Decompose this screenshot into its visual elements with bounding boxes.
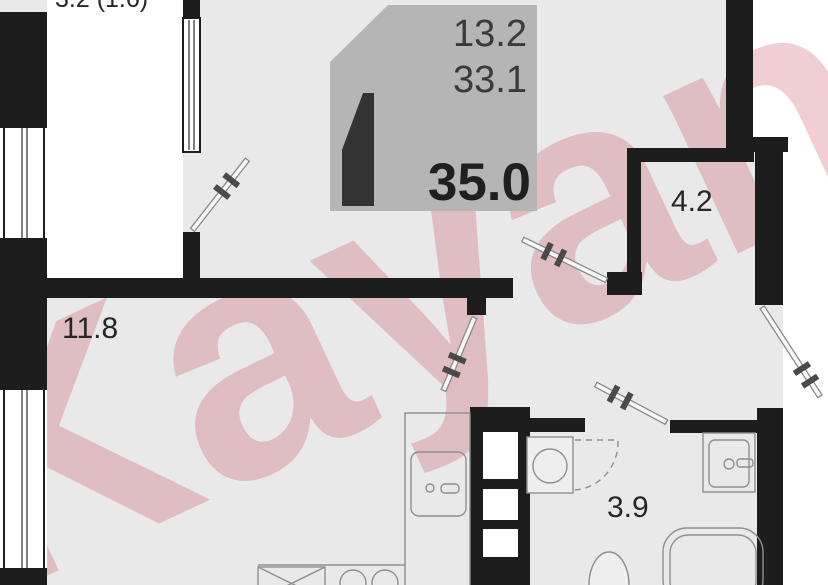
window-balcony-divider [183,18,200,152]
wall-divider-top-cap [183,0,200,18]
total-area-value: 35.0 [428,153,531,212]
room-area-value: 13.2 [453,13,527,55]
washing-machine-icon [527,437,573,493]
wall-left-bottom-cap [0,568,47,585]
wall-divider-bottom [183,232,200,278]
wall-left-upper [0,12,47,128]
wall-right-upper [726,0,753,147]
wall-hall-corner [607,272,642,295]
wall-hall-left [627,148,641,272]
wall-right-entry-side [755,152,783,305]
living-area-value: 33.1 [453,59,527,101]
label-hallway: 4.2 [671,185,713,218]
floor-plan: Kayan 13.2 33.1 35.0 [0,0,828,585]
wall-right-lower [757,408,783,585]
wall-right-ledge [726,137,788,152]
wall-mid-horizontal [45,278,513,298]
label-balcony-clipped: 3.2 (1.6) [55,0,148,13]
label-bathroom: 3.9 [607,491,649,524]
window-balcony-upper [0,128,47,238]
label-living-kitchen: 11.8 [62,312,118,345]
area-summary-box: 13.2 33.1 35.0 [330,5,537,212]
wall-bathroom-top [670,420,757,433]
floor-plan-canvas: Kayan 13.2 33.1 35.0 [0,0,828,585]
wall-left-middle [0,238,47,390]
wall-door-stub [467,298,486,315]
window-living-room [0,390,47,568]
